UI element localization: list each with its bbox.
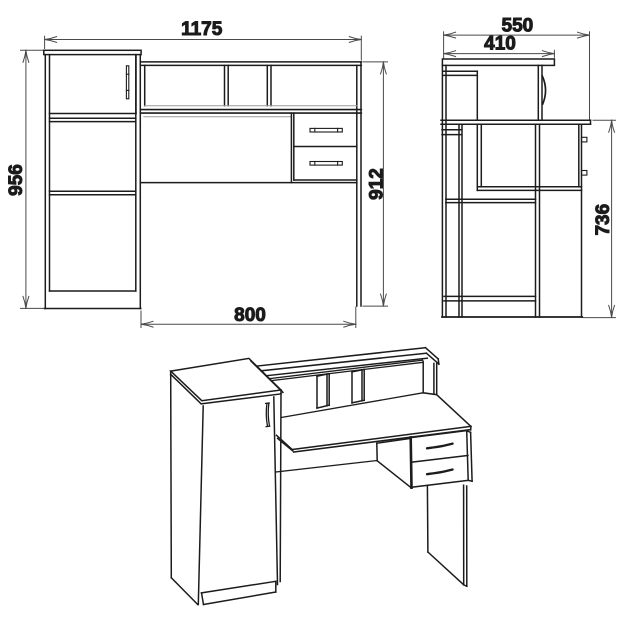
svg-text:800: 800: [234, 305, 266, 326]
svg-text:410: 410: [484, 34, 516, 55]
svg-text:912: 912: [366, 168, 387, 200]
svg-text:1175: 1175: [181, 19, 223, 40]
svg-text:736: 736: [593, 204, 614, 236]
svg-text:956: 956: [6, 164, 27, 196]
